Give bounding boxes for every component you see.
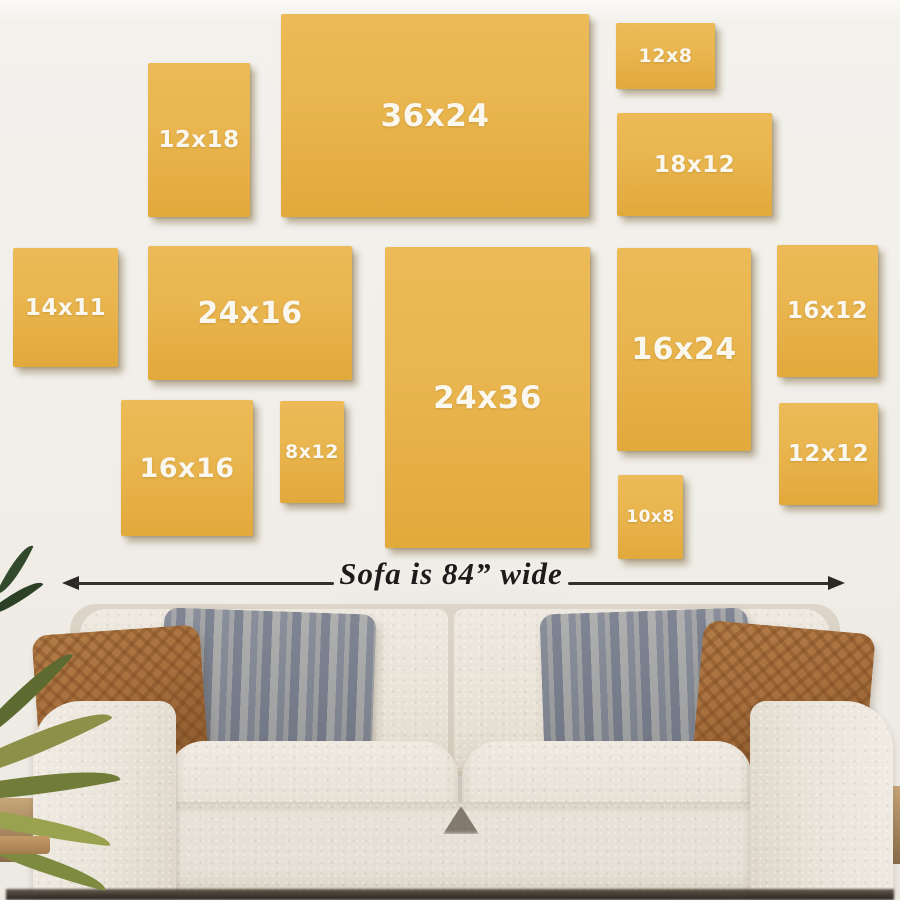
- plant-pot: [0, 836, 50, 854]
- frame-size-label: 24x36: [433, 380, 542, 416]
- frame-size-label: 16x16: [139, 453, 234, 484]
- frame-size-label: 10x8: [626, 507, 674, 527]
- frame-36x24: 36x24: [281, 14, 589, 217]
- frame-size-label: 12x8: [639, 45, 693, 67]
- frame-12x8: 12x8: [616, 23, 715, 89]
- frame-size-label: 12x18: [158, 127, 239, 153]
- frame-size-label: 36x24: [381, 98, 490, 134]
- frame-size-label: 12x12: [788, 441, 869, 467]
- frame-12x18: 12x18: [148, 63, 250, 217]
- frame-24x16: 24x16: [148, 246, 352, 380]
- frame-size-label: 24x16: [197, 296, 302, 331]
- frame-size-label: 16x24: [631, 332, 736, 367]
- frame-18x12: 18x12: [617, 113, 772, 216]
- sofa-arm-right: [750, 701, 893, 894]
- wall-art-size-guide-scene: 12x1836x2412x818x1214x1124x1624x3616x241…: [0, 0, 900, 900]
- sofa-ground-shadow: [6, 889, 894, 900]
- frame-size-label: 18x12: [654, 152, 735, 178]
- frame-16x24: 16x24: [617, 248, 751, 451]
- frame-24x36: 24x36: [385, 247, 590, 548]
- frame-14x11: 14x11: [13, 248, 118, 367]
- frame-10x8: 10x8: [618, 475, 683, 559]
- frame-16x12: 16x12: [777, 245, 878, 377]
- frame-size-label: 8x12: [285, 441, 339, 463]
- frame-8x12: 8x12: [280, 401, 344, 503]
- frame-size-label: 14x11: [25, 295, 106, 321]
- frame-16x16: 16x16: [121, 400, 253, 536]
- frame-12x12: 12x12: [779, 403, 878, 505]
- frame-size-label: 16x12: [787, 298, 868, 324]
